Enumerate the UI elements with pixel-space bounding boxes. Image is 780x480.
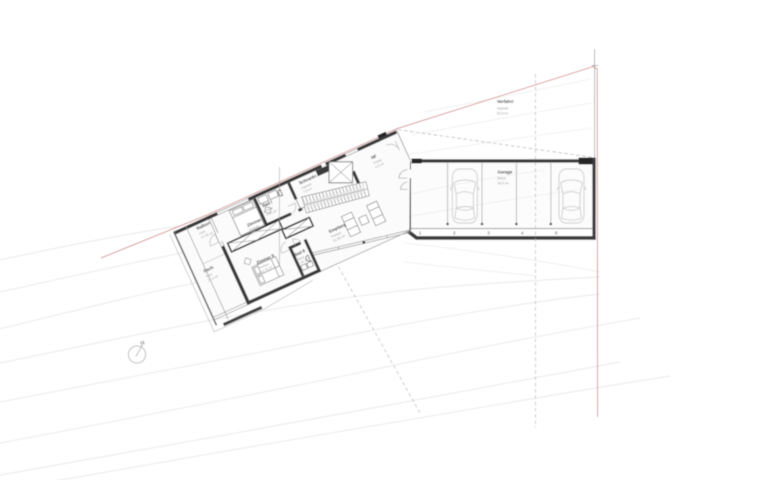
svg-text:92.8 m²: 92.8 m² [497, 112, 509, 116]
svg-text:3: 3 [487, 231, 490, 236]
svg-text:Asphalt: Asphalt [497, 107, 508, 111]
svg-text:2: 2 [453, 231, 456, 236]
svg-text:1: 1 [419, 231, 422, 236]
svg-text:Vorfahrt: Vorfahrt [497, 99, 514, 104]
svg-text:Garage: Garage [498, 170, 513, 175]
svg-text:Beton: Beton [498, 177, 507, 181]
svg-text:45.9 m²: 45.9 m² [498, 181, 510, 185]
svg-text:5: 5 [555, 231, 558, 236]
svg-text:4: 4 [521, 231, 524, 236]
